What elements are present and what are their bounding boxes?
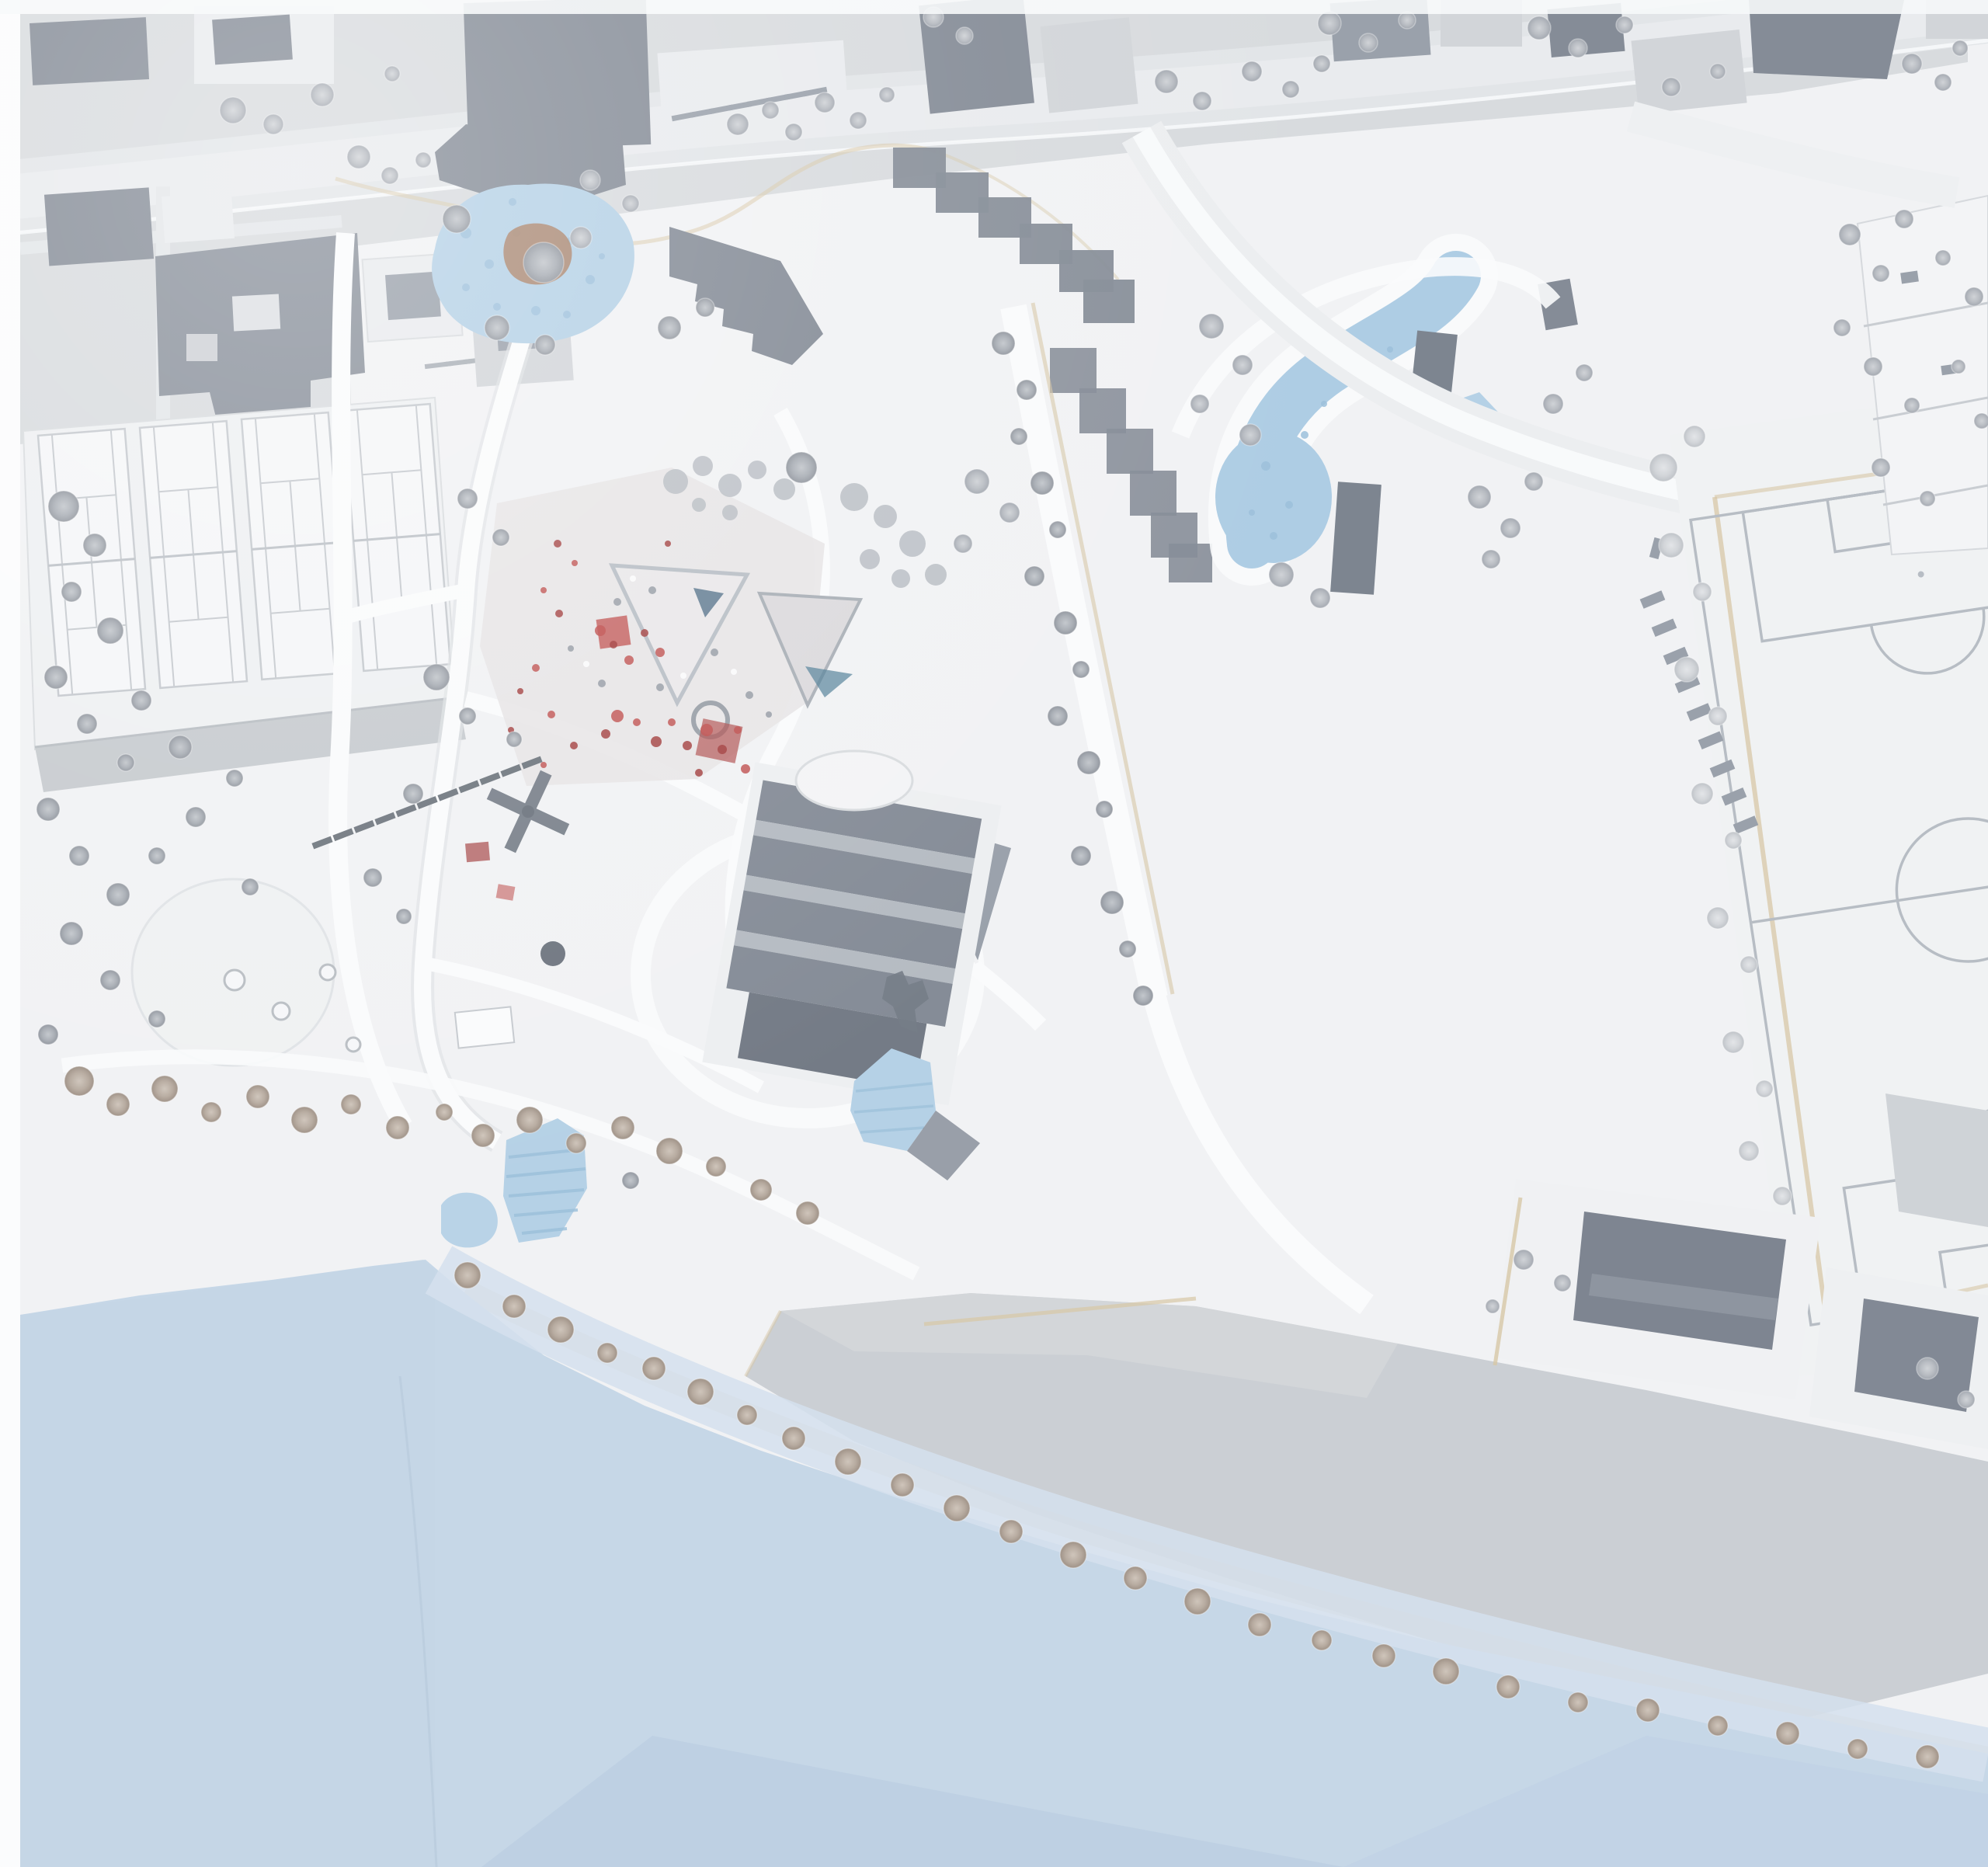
tree <box>782 1427 805 1450</box>
tree <box>1847 1739 1868 1759</box>
tree <box>1864 357 1882 376</box>
tree <box>750 1179 772 1201</box>
tree <box>1904 398 1920 413</box>
tree <box>1952 40 1968 56</box>
tree <box>1773 1187 1792 1205</box>
tree <box>1659 533 1684 558</box>
tree <box>1965 287 1983 306</box>
tree <box>1707 907 1729 929</box>
tree <box>1740 956 1757 973</box>
tree <box>1500 518 1521 538</box>
tree <box>1974 413 1988 429</box>
tree <box>1184 1588 1211 1615</box>
tree <box>1133 986 1153 1006</box>
tree <box>1527 16 1551 40</box>
tree <box>1310 588 1330 608</box>
stream-ripples <box>1387 346 1393 353</box>
tree <box>1902 54 1922 74</box>
lake-left-tint <box>20 1260 435 1867</box>
tree <box>1935 250 1951 266</box>
tree <box>1482 550 1500 568</box>
tree <box>796 1201 819 1225</box>
building <box>1631 30 1746 114</box>
tree <box>1833 319 1851 336</box>
tree <box>454 1262 481 1288</box>
tree <box>1269 562 1294 587</box>
tree <box>1872 458 1890 477</box>
tree <box>1839 224 1861 245</box>
tree <box>1372 1644 1395 1667</box>
tree <box>1920 491 1935 506</box>
tree <box>502 1295 526 1318</box>
tree <box>1756 1080 1773 1097</box>
tree <box>1934 74 1952 91</box>
tree <box>1543 394 1563 414</box>
tree <box>1312 1630 1332 1650</box>
tree <box>1554 1274 1571 1292</box>
tree <box>737 1405 757 1425</box>
tree <box>1649 454 1677 482</box>
tree <box>1708 1716 1728 1736</box>
tree <box>706 1156 726 1177</box>
tree <box>597 1343 617 1363</box>
tree <box>891 1473 914 1497</box>
tree <box>547 1316 574 1343</box>
tree <box>1248 1613 1271 1636</box>
map-layers <box>0 0 1988 1867</box>
building-annex <box>1885 1093 1988 1227</box>
tree <box>1636 1698 1660 1722</box>
stream-ripples <box>1321 401 1327 407</box>
tree <box>1514 1250 1534 1270</box>
tree <box>1917 1358 1938 1379</box>
tree <box>1496 1675 1520 1698</box>
tree <box>1359 33 1378 52</box>
tree <box>642 1357 666 1380</box>
tree <box>1684 426 1705 447</box>
tree <box>1674 657 1699 682</box>
tree <box>622 1172 639 1189</box>
tree <box>1124 1566 1147 1590</box>
tree <box>1568 1692 1588 1712</box>
tree <box>1739 1141 1759 1161</box>
tree <box>1060 1542 1086 1568</box>
tree <box>1708 707 1727 725</box>
tree <box>1524 472 1543 491</box>
tree <box>1433 1658 1459 1684</box>
tree <box>944 1495 970 1521</box>
tree <box>1952 360 1965 374</box>
tree <box>687 1379 714 1405</box>
tree <box>1468 485 1491 509</box>
screenshot-root <box>0 0 1988 1867</box>
tree <box>1662 78 1680 96</box>
tree <box>1569 39 1587 57</box>
tree <box>1486 1299 1500 1313</box>
tree <box>1119 940 1136 958</box>
tree <box>1776 1722 1799 1745</box>
tree <box>1872 265 1889 282</box>
tree <box>1576 364 1593 381</box>
site-plan-map[interactable] <box>0 0 1988 1867</box>
tree <box>1399 12 1416 29</box>
tree <box>1616 16 1633 33</box>
tree <box>1691 783 1713 805</box>
tree <box>835 1448 861 1475</box>
foot-bridge <box>1330 482 1382 595</box>
tree <box>1895 210 1913 228</box>
tree <box>1916 1745 1939 1768</box>
tree <box>1722 1031 1744 1053</box>
tree <box>1693 582 1712 601</box>
tree <box>1710 64 1726 79</box>
tree <box>1725 832 1742 849</box>
tree <box>999 1520 1023 1543</box>
tree <box>1958 1391 1975 1408</box>
tree <box>1100 891 1124 914</box>
